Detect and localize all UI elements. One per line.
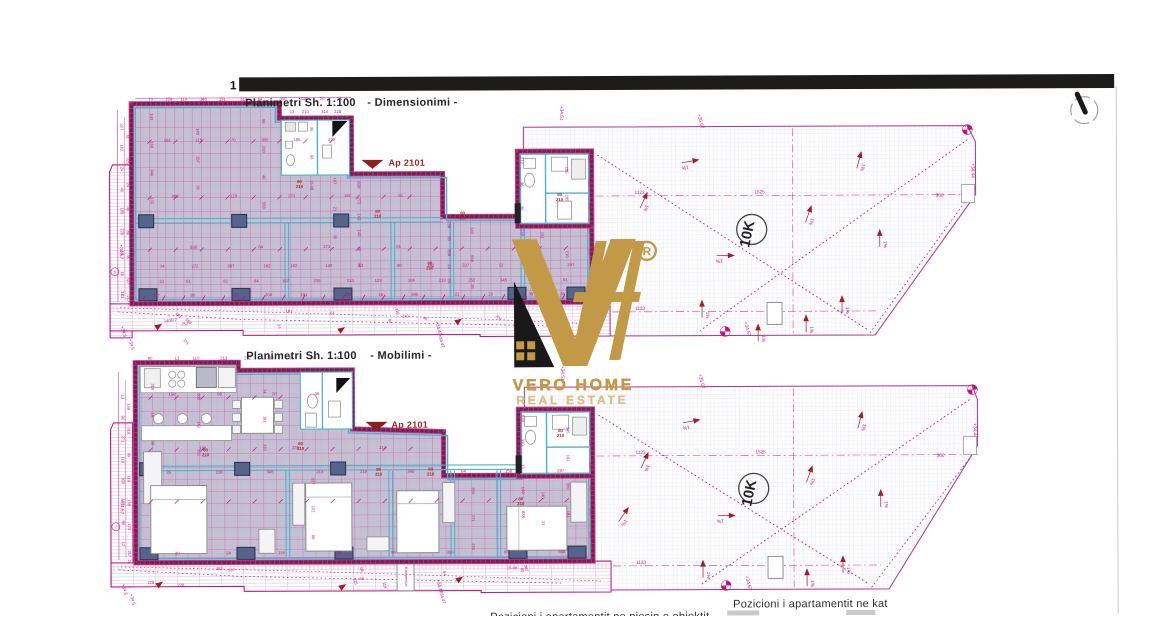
svg-text:119: 119 [589,440,594,447]
svg-text:1%: 1% [704,312,710,320]
svg-text:96: 96 [217,391,222,396]
svg-text:327: 327 [462,262,470,267]
svg-text:1%: 1% [882,241,888,249]
svg-text:96: 96 [120,415,125,420]
svg-text:345: 345 [267,469,275,474]
svg-text:1525: 1525 [754,189,765,194]
svg-text:158: 158 [127,499,132,506]
svg-text:90: 90 [148,356,153,361]
svg-text:12: 12 [121,541,126,546]
svg-text:300: 300 [121,477,126,485]
svg-text:327: 327 [170,317,177,322]
svg-text:Pozicioni i apartamentit ne ka: Pozicioni i apartamentit ne kat [733,598,888,611]
svg-text:228: 228 [292,445,300,450]
svg-text:35: 35 [120,250,125,255]
svg-text:24: 24 [126,183,131,188]
svg-text:46: 46 [120,187,125,192]
svg-text:310: 310 [150,383,155,390]
svg-text:VERO HOME: VERO HOME [513,377,634,394]
svg-text:272: 272 [191,264,199,269]
svg-text:191: 191 [219,96,227,101]
svg-text:1123: 1123 [635,190,645,195]
svg-text:387: 387 [153,293,161,298]
svg-text:36: 36 [196,185,201,190]
svg-text:20: 20 [234,292,239,297]
svg-text:+34.44: +34.44 [971,423,977,438]
svg-text:1%: 1% [715,258,723,264]
svg-text:238: 238 [216,469,224,474]
svg-text:210: 210 [517,501,525,506]
svg-text:210: 210 [565,251,570,258]
svg-text:1%: 1% [808,326,814,334]
svg-text:1: 1 [230,78,237,92]
svg-text:+34.47: +34.47 [437,334,446,349]
svg-text:36: 36 [520,206,525,211]
svg-text:210: 210 [375,472,383,477]
svg-text:228: 228 [520,229,525,237]
svg-text:220: 220 [120,228,125,236]
svg-text:35: 35 [560,291,565,296]
svg-text:80: 80 [190,293,195,298]
svg-text:35: 35 [126,255,131,260]
svg-text:40: 40 [126,207,131,212]
svg-text:345: 345 [500,277,508,282]
svg-text:838: 838 [357,181,362,189]
svg-text:252: 252 [468,277,476,282]
svg-text:13: 13 [488,291,493,296]
svg-text:213: 213 [347,278,355,283]
svg-text:213: 213 [379,445,387,450]
svg-text:558: 558 [470,255,475,262]
svg-text:13: 13 [521,464,526,469]
svg-text:35: 35 [529,291,534,296]
svg-text:300: 300 [408,278,416,283]
svg-text:21: 21 [455,292,460,297]
svg-text:158: 158 [126,403,131,410]
svg-text:150: 150 [589,463,594,471]
svg-text:210: 210 [557,433,565,438]
svg-text:1%: 1% [760,335,766,343]
svg-text:297: 297 [195,156,200,163]
svg-text:271: 271 [121,435,126,443]
svg-text:140: 140 [357,229,362,237]
svg-text:838: 838 [520,415,525,423]
svg-text:36: 36 [333,235,338,240]
svg-text:1123: 1123 [635,306,645,311]
svg-text:21: 21 [333,207,338,212]
svg-text:61: 61 [223,278,228,283]
svg-text:162: 162 [311,506,316,513]
svg-text:1%: 1% [182,338,190,346]
svg-text:310: 310 [321,109,329,114]
svg-text:123: 123 [375,278,383,283]
svg-text:210: 210 [202,452,210,457]
svg-text:271: 271 [471,515,476,522]
svg-text:90: 90 [127,453,132,458]
svg-text:162: 162 [216,566,223,571]
svg-text:310: 310 [521,439,526,447]
svg-text:345: 345 [588,226,593,234]
svg-text:297: 297 [567,262,575,267]
svg-text:167: 167 [121,498,126,506]
svg-text:Pozicioni i apartamentit ne pj: Pozicioni i apartamentit ne pjesin e obj… [490,611,709,616]
svg-text:150: 150 [278,550,286,555]
svg-text:167: 167 [566,455,571,462]
svg-text:24: 24 [119,166,124,171]
svg-text:115: 115 [195,138,202,143]
svg-text:21: 21 [160,279,165,284]
svg-text:Kompresori: Kompresori [404,567,408,587]
svg-text:271: 271 [288,193,296,198]
svg-text:346: 346 [589,509,594,517]
svg-text:15-98: 15-98 [310,180,315,191]
svg-text:350: 350 [566,483,571,490]
svg-text:185: 185 [293,137,301,142]
svg-text:35: 35 [166,470,171,475]
svg-text:46: 46 [357,263,362,268]
svg-text:15-98: 15-98 [507,565,518,570]
svg-text:1123: 1123 [636,560,646,565]
svg-text:238: 238 [313,278,321,283]
svg-text:252: 252 [182,321,189,326]
svg-text:345: 345 [407,469,415,474]
svg-text:1%: 1% [716,518,724,524]
svg-text:46: 46 [423,316,428,321]
svg-text:310: 310 [263,444,268,451]
svg-text:228: 228 [148,580,155,585]
svg-text:20: 20 [447,278,452,283]
svg-text:110: 110 [121,456,126,463]
svg-text:210: 210 [296,184,304,189]
svg-text:Planimetri Sh. 1:100: Planimetri Sh. 1:100 [246,350,357,362]
svg-text:310: 310 [126,427,131,434]
svg-text:1%: 1% [809,580,815,588]
svg-text:1%: 1% [705,572,711,580]
svg-text:80: 80 [447,236,452,241]
svg-text:74: 74 [160,264,165,269]
svg-text:80: 80 [397,263,402,268]
svg-text:+34.51: +34.51 [558,106,564,121]
svg-text:110: 110 [589,532,594,539]
svg-text:213: 213 [439,278,447,283]
svg-text:24: 24 [447,264,452,269]
svg-text:210: 210 [427,471,435,476]
svg-text:272: 272 [519,157,524,165]
svg-text:228: 228 [334,109,342,114]
svg-text:13: 13 [290,109,295,114]
svg-text:12: 12 [499,262,504,267]
svg-text:R: R [642,244,651,258]
svg-text:20: 20 [175,551,180,556]
svg-text:90: 90 [391,550,396,555]
svg-text:64: 64 [461,469,466,474]
svg-text:- Mobilimi -: - Mobilimi - [370,350,432,362]
svg-text:140: 140 [164,318,171,323]
svg-text:350: 350 [261,137,269,142]
svg-text:327: 327 [587,157,592,165]
svg-text:346: 346 [200,97,208,102]
svg-text:558: 558 [558,549,566,554]
svg-text:7: 7 [115,525,117,529]
svg-text:167: 167 [589,486,594,494]
svg-text:Ap 2101: Ap 2101 [388,158,425,168]
svg-text:327: 327 [119,123,124,131]
svg-text:110: 110 [193,356,200,361]
svg-text:150: 150 [168,392,176,397]
svg-text:80: 80 [504,549,509,554]
svg-text:181: 181 [164,138,172,143]
svg-text:350: 350 [471,487,476,494]
svg-text:1525: 1525 [755,449,766,454]
svg-text:140: 140 [521,487,526,495]
svg-text:96: 96 [520,182,525,187]
svg-text:140: 140 [402,313,409,318]
svg-text:20: 20 [272,391,277,396]
svg-text:143: 143 [149,113,154,120]
svg-text:61: 61 [398,193,403,198]
svg-text:162: 162 [263,263,271,268]
svg-text:158: 158 [505,468,513,473]
svg-text:350: 350 [447,550,455,555]
svg-text:191: 191 [540,232,545,239]
svg-text:300: 300 [265,292,273,297]
svg-text:123: 123 [230,193,238,198]
svg-text:345: 345 [411,292,419,297]
svg-text:+34.44: +34.44 [969,163,975,178]
svg-text:213: 213 [316,469,324,474]
svg-text:98: 98 [261,119,266,124]
svg-text:217: 217 [127,550,132,557]
svg-text:+34.5: +34.5 [129,593,137,606]
svg-text:181: 181 [262,416,267,423]
svg-text:98: 98 [565,224,570,229]
svg-text:36: 36 [309,127,314,132]
svg-text:181: 181 [120,291,125,299]
svg-text:228: 228 [178,583,185,588]
svg-text:185: 185 [564,167,569,174]
svg-text:150: 150 [149,141,154,148]
svg-text:185: 185 [120,207,125,215]
svg-text:+34.47: +34.47 [438,590,447,605]
svg-text:167: 167 [333,178,338,185]
svg-text:74: 74 [588,418,593,423]
svg-text:REAL ESTATE: REAL ESTATE [516,393,628,407]
svg-text:1%: 1% [883,501,889,509]
svg-text:70: 70 [148,97,153,102]
svg-text:61: 61 [396,244,401,249]
svg-text:61: 61 [563,277,568,282]
svg-text:162: 162 [119,144,124,152]
svg-text:40: 40 [262,175,267,180]
svg-text:70: 70 [231,137,236,142]
svg-text:1%: 1% [845,567,851,575]
svg-text:238: 238 [447,221,452,229]
svg-text:162: 162 [197,449,202,456]
svg-text:325: 325 [588,180,593,188]
svg-text:210: 210 [360,469,368,474]
svg-text:210: 210 [302,109,310,114]
svg-text:1123: 1123 [636,450,646,455]
svg-text:61: 61 [125,135,130,140]
svg-text:838: 838 [190,245,198,250]
svg-text:300: 300 [937,453,945,458]
svg-text:36: 36 [315,391,320,396]
svg-text:558: 558 [262,202,267,209]
svg-text:16: 16 [379,292,384,297]
svg-text:74: 74 [262,389,267,394]
svg-text:140: 140 [470,227,475,234]
svg-text:98: 98 [151,440,156,445]
svg-text:220: 220 [261,146,266,153]
svg-text:1%: 1% [844,307,850,315]
svg-text:229: 229 [344,292,352,297]
svg-text:229: 229 [471,543,476,550]
svg-text:21: 21 [541,521,546,526]
svg-text:80: 80 [126,231,131,236]
svg-text:140: 140 [325,263,333,268]
svg-text:272: 272 [357,197,362,205]
svg-text:140: 140 [541,492,546,499]
svg-text:327: 327 [311,478,316,485]
svg-text:158: 158 [165,97,173,102]
svg-text:300: 300 [936,193,944,198]
svg-text:387: 387 [227,263,235,268]
svg-text:Ap 2101: Ap 2101 [391,420,428,430]
svg-text:64: 64 [254,278,259,283]
svg-text:- Dimensionimi -: - Dimensionimi - [367,97,457,109]
svg-text:346: 346 [149,169,154,176]
svg-text:143: 143 [196,421,201,428]
svg-text:143: 143 [357,213,362,221]
svg-text:162: 162 [427,263,435,268]
svg-text:297: 297 [557,468,565,473]
svg-text:140: 140 [195,128,200,135]
svg-text:838: 838 [521,511,526,519]
svg-text:96: 96 [121,520,126,525]
svg-text:35: 35 [470,284,475,289]
svg-text:345: 345 [565,427,570,434]
svg-text:64: 64 [330,310,335,315]
svg-text:140: 140 [588,249,593,257]
svg-text:167: 167 [344,193,352,198]
svg-text:238: 238 [335,550,343,555]
svg-text:210: 210 [556,197,564,202]
svg-text:24: 24 [226,550,231,555]
svg-text:167: 167 [282,278,290,283]
svg-text:110: 110 [181,97,188,102]
svg-text:213: 213 [220,355,228,360]
svg-text:64: 64 [258,244,263,249]
svg-text:61: 61 [186,279,191,284]
svg-text:327: 327 [126,277,131,284]
svg-text:119: 119 [127,476,132,483]
svg-text:297: 297 [228,567,235,572]
svg-text:90: 90 [309,155,314,160]
svg-text:13: 13 [120,394,125,399]
svg-text:+34.5: +34.5 [128,338,136,351]
svg-text:185: 185 [565,195,570,202]
svg-text:12: 12 [175,356,180,361]
svg-text:80: 80 [311,535,316,540]
svg-text:162: 162 [290,263,298,268]
svg-text:16: 16 [150,412,155,417]
svg-text:5: 5 [114,270,116,274]
svg-text:133: 133 [150,197,155,204]
svg-text:36: 36 [359,576,364,581]
svg-text:123: 123 [127,523,132,530]
svg-text:271: 271 [323,244,331,249]
svg-text:210: 210 [374,214,382,219]
svg-text:191: 191 [566,511,571,518]
svg-text:558: 558 [447,249,452,257]
svg-text:325: 325 [125,157,130,164]
svg-text:16: 16 [120,271,125,276]
svg-text:140: 140 [588,203,593,211]
svg-text:210: 210 [459,215,467,220]
svg-text:Planimetri Sh. 1:100: Planimetri Sh. 1:100 [245,97,356,109]
svg-text:272: 272 [328,137,336,142]
